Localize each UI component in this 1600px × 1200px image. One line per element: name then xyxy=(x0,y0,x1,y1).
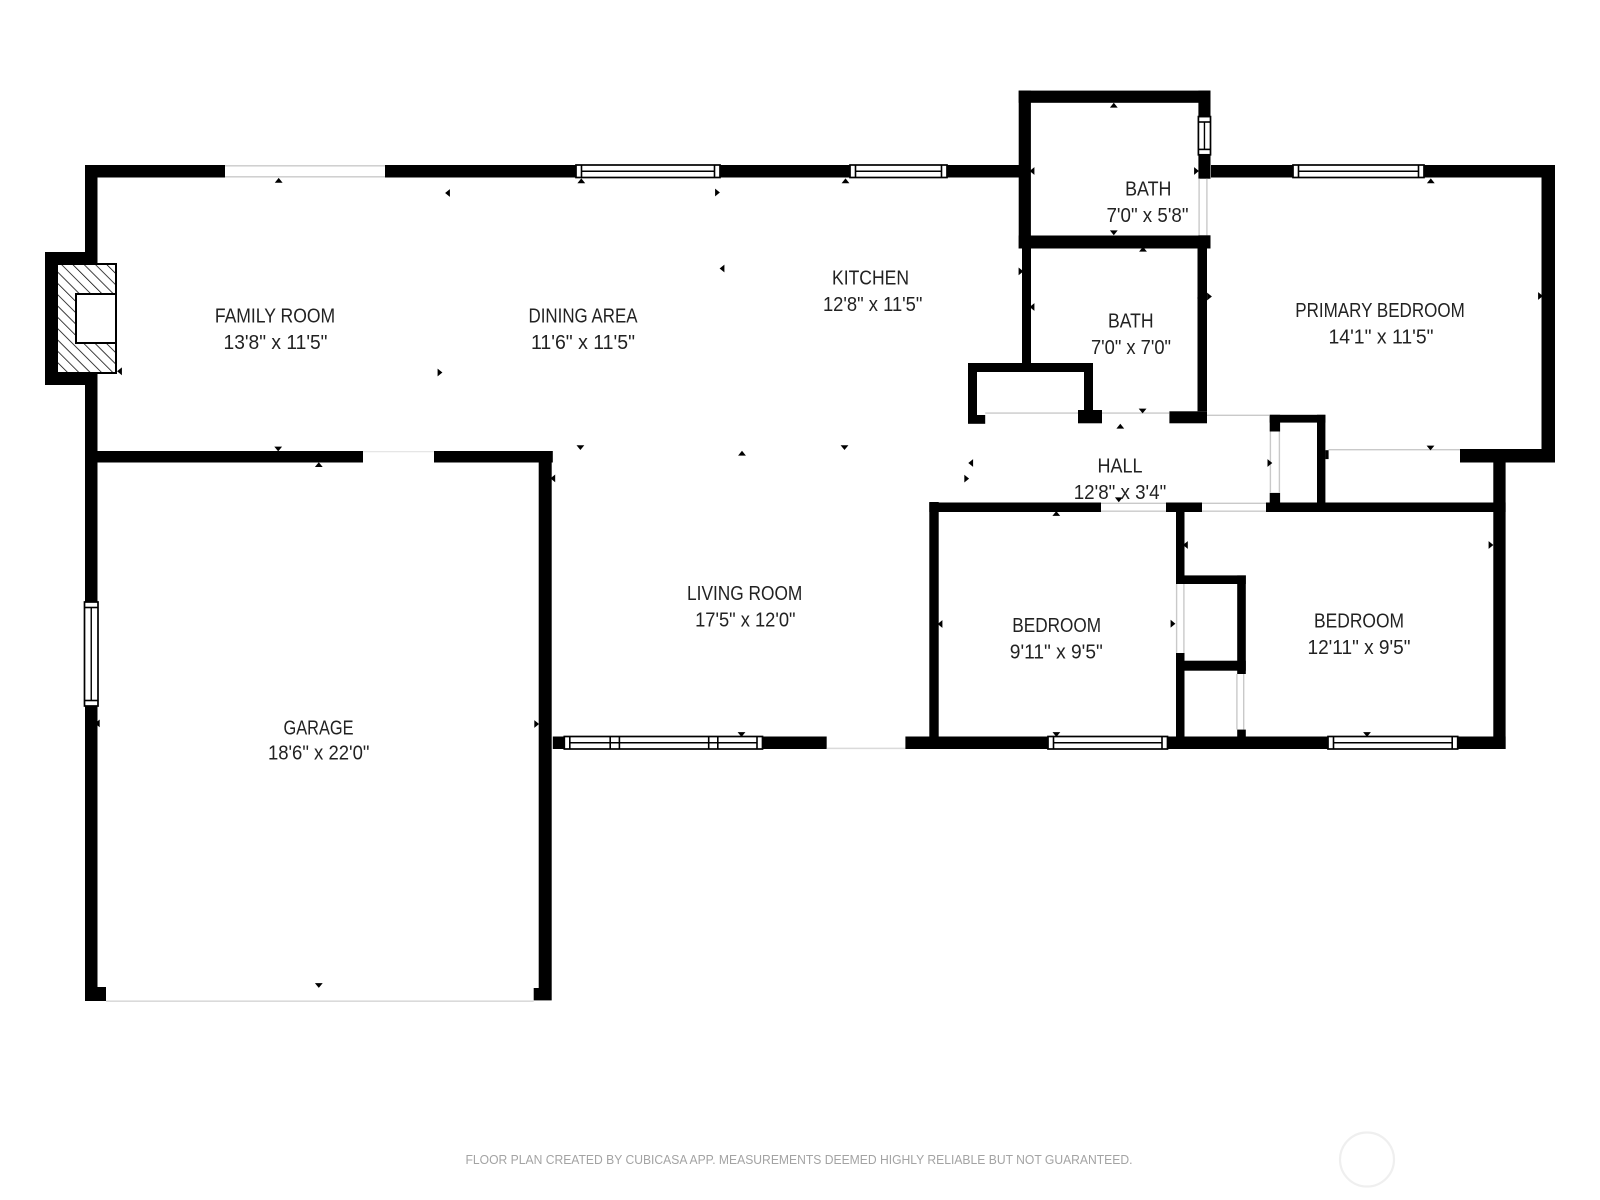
svg-text:13'8" x 11'5": 13'8" x 11'5" xyxy=(224,332,328,354)
svg-text:LIVING ROOM: LIVING ROOM xyxy=(687,583,802,605)
svg-text:17'5" x 12'0": 17'5" x 12'0" xyxy=(695,610,795,632)
svg-text:12'8" x 3'4": 12'8" x 3'4" xyxy=(1074,482,1167,504)
svg-text:7'0" x 5'8": 7'0" x 5'8" xyxy=(1107,205,1189,227)
svg-text:9'11" x 9'5": 9'11" x 9'5" xyxy=(1010,642,1103,664)
svg-text:PRIMARY BEDROOM: PRIMARY BEDROOM xyxy=(1295,300,1465,322)
svg-text:12'8" x 11'5": 12'8" x 11'5" xyxy=(823,294,923,316)
svg-text:BEDROOM: BEDROOM xyxy=(1012,615,1101,637)
svg-text:DINING AREA: DINING AREA xyxy=(529,305,639,327)
svg-text:FAMILY ROOM: FAMILY ROOM xyxy=(215,305,335,327)
svg-text:BEDROOM: BEDROOM xyxy=(1314,611,1404,633)
svg-text:14'1" x 11'5": 14'1" x 11'5" xyxy=(1329,327,1434,349)
svg-text:11'6" x 11'5": 11'6" x 11'5" xyxy=(531,332,635,354)
svg-text:FLOOR PLAN CREATED BY CUBICASA: FLOOR PLAN CREATED BY CUBICASA APP. MEAS… xyxy=(466,1152,1133,1167)
svg-text:HALL: HALL xyxy=(1098,456,1143,478)
svg-text:18'6" x 22'0": 18'6" x 22'0" xyxy=(268,743,370,765)
svg-text:BATH: BATH xyxy=(1125,178,1171,200)
svg-text:7'0" x 7'0": 7'0" x 7'0" xyxy=(1091,337,1171,359)
svg-text:12'11" x 9'5": 12'11" x 9'5" xyxy=(1308,637,1411,659)
svg-text:KITCHEN: KITCHEN xyxy=(832,267,909,289)
svg-text:GARAGE: GARAGE xyxy=(284,718,354,740)
svg-text:BATH: BATH xyxy=(1108,311,1154,333)
